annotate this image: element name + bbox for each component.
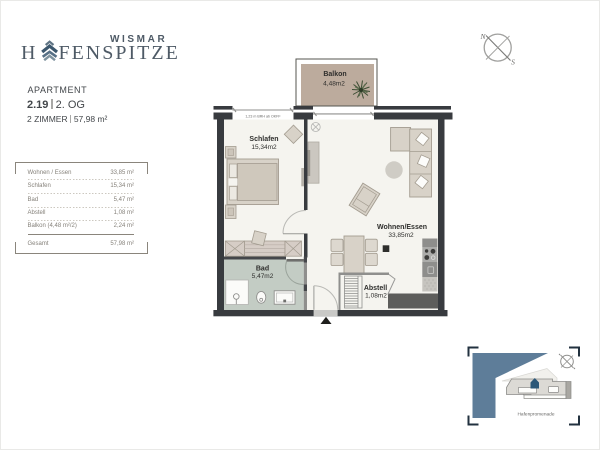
svg-text:5,47m2: 5,47m2 xyxy=(252,273,274,280)
svg-text:4,48m2: 4,48m2 xyxy=(323,81,345,88)
svg-text:1,23 m BRH ab OKFF: 1,23 m BRH ab OKFF xyxy=(245,115,281,119)
svg-text:1,08m2: 1,08m2 xyxy=(365,293,387,300)
svg-text:Wohnen/Essen: Wohnen/Essen xyxy=(377,224,427,231)
svg-text:N: N xyxy=(479,32,486,41)
svg-text:S: S xyxy=(511,58,515,67)
svg-text:Abstell: Abstell xyxy=(364,285,387,292)
svg-text:33,85m2: 33,85m2 xyxy=(388,232,414,239)
svg-text:Balkon: Balkon xyxy=(323,71,346,78)
svg-text:Bad: Bad xyxy=(256,266,269,273)
svg-text:15,34m2: 15,34m2 xyxy=(251,144,277,151)
svg-text:Hafenpromenade: Hafenpromenade xyxy=(517,411,554,417)
svg-text:Schlafen: Schlafen xyxy=(249,136,278,143)
